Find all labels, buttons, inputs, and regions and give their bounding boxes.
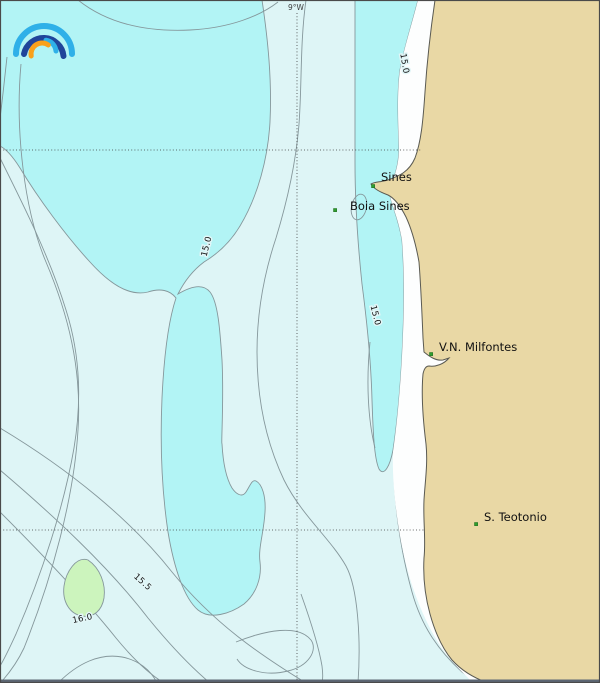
place-marker-vn-milfontes (430, 353, 433, 356)
place-label-sines: Sines (381, 170, 412, 184)
meridian-label: 9°W (288, 3, 305, 12)
place-marker-boia-sines (334, 209, 337, 212)
place-label-s-teotonio: S. Teotonio (484, 510, 547, 524)
place-marker-s-teotonio (475, 523, 478, 526)
place-label-boia-sines: Boia Sines (350, 199, 410, 213)
map-canvas: 9°W 15.0 15.0 15.0 15.5 16.0 Sines Boia … (0, 0, 600, 683)
place-marker-sines (372, 185, 375, 188)
sst-coastal-map: 9°W 15.0 15.0 15.0 15.5 16.0 Sines Boia … (0, 0, 600, 683)
place-label-vn-milfontes: V.N. Milfontes (439, 340, 517, 354)
